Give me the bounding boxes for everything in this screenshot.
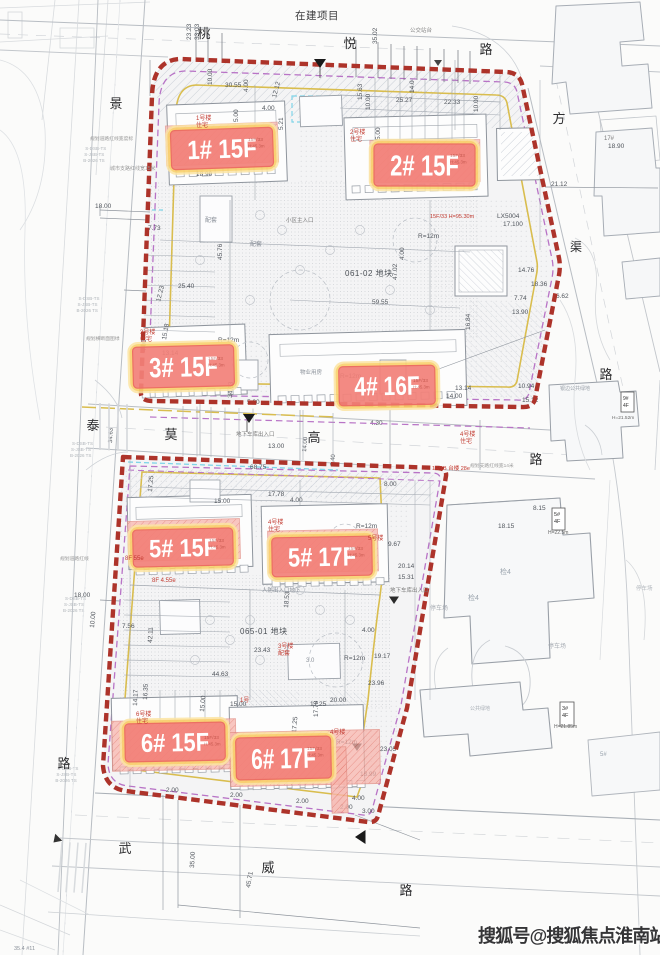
- svg-text:17#: 17#: [604, 136, 615, 142]
- svg-text:45.76: 45.76: [217, 243, 224, 260]
- svg-text:59.55: 59.55: [372, 299, 389, 306]
- svg-text:地下车库出入口: 地下车库出入口: [236, 430, 275, 438]
- svg-text:5.00: 5.00: [375, 127, 382, 140]
- svg-text:住宅: 住宅: [196, 121, 208, 129]
- svg-text:B-2026 TS: B-2026 TS: [83, 158, 104, 163]
- svg-text:3号楼: 3号楼: [278, 642, 293, 650]
- svg-text:8F 55e: 8F 55e: [125, 556, 144, 562]
- svg-text:4.00: 4.00: [262, 105, 275, 112]
- svg-text:13.90: 13.90: [512, 309, 529, 316]
- svg-text:2# 15F: 2# 15F: [390, 150, 459, 182]
- svg-text:景: 景: [109, 96, 122, 111]
- svg-text:15F/33: 15F/33: [209, 538, 224, 544]
- svg-text:在建项目: 在建项目: [295, 9, 339, 22]
- svg-text:18.90: 18.90: [608, 143, 625, 150]
- svg-text:5# 17F: 5# 17F: [288, 541, 357, 572]
- svg-text:23.05: 23.05: [380, 746, 397, 753]
- svg-text:悦: 悦: [343, 36, 356, 51]
- svg-text:规划支路红线宽14米: 规划支路红线宽14米: [470, 462, 514, 469]
- svg-text:30.55: 30.55: [225, 82, 242, 89]
- svg-text:17.100: 17.100: [503, 221, 523, 228]
- svg-text:1号: 1号: [240, 697, 249, 704]
- svg-text:8.15: 8.15: [533, 505, 546, 512]
- svg-text:3#: 3#: [562, 706, 569, 712]
- svg-text:路: 路: [57, 756, 70, 771]
- svg-text:4# 16F: 4# 16F: [354, 370, 420, 401]
- svg-text:23.43: 23.43: [254, 647, 271, 654]
- svg-text:17.78: 17.78: [268, 491, 285, 498]
- svg-text:42.11: 42.11: [147, 627, 155, 644]
- svg-text:规划横断面图绿: 规划横断面图绿: [86, 335, 120, 342]
- svg-text:15F/33: 15F/33: [248, 137, 263, 143]
- svg-text:25.27: 25.27: [396, 97, 413, 104]
- svg-text:17.25: 17.25: [291, 716, 299, 733]
- svg-text:7.73: 7.73: [148, 225, 161, 232]
- svg-text:泰: 泰: [86, 418, 99, 433]
- svg-text:1号楼: 1号楼: [196, 114, 211, 122]
- svg-text:4号楼: 4号楼: [268, 518, 283, 526]
- svg-text:9.67: 9.67: [388, 541, 401, 548]
- svg-text:停车场: 停车场: [548, 642, 566, 650]
- svg-text:城市支路红线宽15米: 城市支路红线宽15米: [110, 165, 156, 172]
- svg-text:检4: 检4: [468, 593, 479, 602]
- svg-text:H=21.85m: H=21.85m: [554, 724, 577, 730]
- svg-text:路: 路: [599, 367, 612, 382]
- svg-text:47.02: 47.02: [392, 263, 399, 280]
- svg-text:住宅: 住宅: [268, 525, 280, 533]
- svg-text:搜狐号@搜狐焦点淮南站: 搜狐号@搜狐焦点淮南站: [478, 925, 660, 946]
- svg-text:9#: 9#: [623, 396, 629, 402]
- svg-text:15F/33: 15F/33: [413, 378, 428, 384]
- svg-text:22.33: 22.33: [444, 99, 461, 106]
- svg-text:4号楼: 4号楼: [460, 430, 475, 438]
- svg-text:68.75: 68.75: [250, 464, 267, 471]
- svg-text:B-2026 TS: B-2026 TS: [63, 608, 84, 613]
- svg-text:R=12m: R=12m: [344, 655, 365, 662]
- svg-text:14.76: 14.76: [518, 267, 535, 274]
- svg-text:人防出入口地下: 人防出入口地下: [262, 586, 301, 594]
- svg-text:25.40: 25.40: [178, 283, 195, 290]
- svg-text:高: 高: [307, 430, 320, 445]
- svg-text:16.35: 16.35: [142, 683, 150, 700]
- svg-text:35.4 #11: 35.4 #11: [14, 946, 35, 952]
- svg-text:20.14: 20.14: [398, 563, 415, 570]
- svg-text:住宅: 住宅: [140, 335, 152, 343]
- svg-text:地下车库出入口: 地下车库出入口: [390, 586, 429, 594]
- svg-text:23.96: 23.96: [368, 680, 385, 687]
- svg-text:1# 15F: 1# 15F: [187, 133, 257, 165]
- svg-text:3.0: 3.0: [306, 658, 315, 664]
- svg-text:20.00: 20.00: [330, 697, 347, 704]
- svg-text:8F 4.55e: 8F 4.55e: [152, 578, 176, 584]
- svg-text:15F/33: 15F/33: [348, 546, 363, 552]
- svg-text:H:45.3m: H:45.3m: [450, 160, 467, 165]
- svg-text:S-JSB-TS: S-JSB-TS: [84, 152, 104, 157]
- svg-text:4号楼: 4号楼: [330, 728, 345, 736]
- svg-text:配套: 配套: [278, 649, 290, 657]
- svg-text:路: 路: [479, 42, 492, 57]
- svg-text:4.00: 4.00: [290, 497, 303, 504]
- svg-text:15F/33: 15F/33: [307, 746, 322, 752]
- svg-text:7.56: 7.56: [122, 623, 135, 630]
- svg-text:6# 15F: 6# 15F: [141, 729, 210, 758]
- svg-text:1F/1B 台楼 28e: 1F/1B 台楼 28e: [432, 464, 470, 472]
- svg-text:住宅: 住宅: [460, 437, 472, 445]
- svg-text:15.31: 15.31: [398, 574, 415, 581]
- svg-text:3号楼: 3号楼: [140, 328, 155, 336]
- svg-text:23.23: 23.23: [186, 23, 193, 40]
- svg-text:5.21: 5.21: [278, 117, 285, 130]
- svg-text:10.00: 10.00: [89, 611, 97, 628]
- svg-text:路: 路: [529, 452, 542, 467]
- svg-text:路: 路: [399, 883, 412, 898]
- svg-text:065-01 地块: 065-01 地块: [240, 626, 288, 636]
- svg-text:4F: 4F: [562, 713, 569, 719]
- svg-text:18.36: 18.36: [531, 281, 548, 288]
- svg-text:15.63: 15.63: [357, 83, 364, 100]
- svg-text:配套: 配套: [250, 240, 262, 248]
- svg-text:2.00: 2.00: [230, 792, 243, 799]
- svg-text:4.00: 4.00: [399, 247, 406, 260]
- svg-text:4.00: 4.00: [352, 795, 365, 802]
- svg-text:16.84: 16.84: [465, 313, 472, 330]
- svg-text:35.02: 35.02: [372, 27, 379, 44]
- svg-text:13.00: 13.00: [268, 443, 285, 450]
- svg-text:14.00: 14.00: [446, 393, 463, 400]
- svg-text:15F/33: 15F/33: [208, 356, 223, 362]
- svg-text:44.63: 44.63: [212, 671, 229, 678]
- svg-text:2.00: 2.00: [166, 787, 179, 794]
- svg-text:配套: 配套: [205, 216, 217, 224]
- svg-text:4.00: 4.00: [362, 627, 375, 634]
- svg-text:H:45.3m: H:45.3m: [348, 553, 365, 558]
- svg-text:13.14: 13.14: [455, 385, 472, 392]
- svg-text:4F: 4F: [554, 519, 561, 525]
- svg-text:R=12m: R=12m: [418, 233, 439, 240]
- svg-text:S-DSB-TS: S-DSB-TS: [85, 146, 106, 151]
- svg-text:银边公共绿地: 银边公共绿地: [560, 385, 590, 392]
- svg-text:LX5004: LX5004: [497, 213, 520, 220]
- svg-text:10.94: 10.94: [518, 383, 535, 390]
- svg-text:15.00: 15.00: [199, 695, 207, 712]
- svg-text:17.25: 17.25: [147, 475, 155, 492]
- svg-text:5# 15F: 5# 15F: [149, 534, 218, 564]
- svg-text:物业用房: 物业用房: [300, 368, 323, 376]
- svg-text:H:45.3m: H:45.3m: [208, 363, 225, 368]
- svg-text:莫: 莫: [164, 427, 177, 442]
- svg-text:武: 武: [118, 841, 131, 856]
- svg-text:B-2026 TS: B-2026 TS: [77, 308, 98, 313]
- svg-text:10.00: 10.00: [365, 93, 372, 110]
- svg-text:住宅: 住宅: [136, 717, 148, 725]
- svg-text:18.00: 18.00: [95, 203, 112, 210]
- svg-text:渠: 渠: [570, 240, 582, 254]
- svg-text:6号楼: 6号楼: [136, 710, 151, 718]
- svg-text:H:45.3m: H:45.3m: [248, 144, 265, 149]
- svg-text:方: 方: [552, 111, 565, 126]
- svg-text:2号楼: 2号楼: [350, 128, 365, 136]
- svg-text:8.00: 8.00: [384, 481, 397, 488]
- svg-text:7.74: 7.74: [514, 295, 527, 302]
- svg-text:15F/33: 15F/33: [450, 153, 465, 159]
- svg-text:停车场: 停车场: [430, 604, 448, 612]
- svg-text:10.00: 10.00: [473, 95, 480, 112]
- svg-text:14.17: 14.17: [132, 689, 140, 706]
- svg-text:5#: 5#: [554, 512, 561, 518]
- svg-text:5号楼: 5号楼: [368, 534, 383, 542]
- svg-text:4.00: 4.00: [243, 79, 250, 92]
- svg-text:H:45.3m: H:45.3m: [209, 545, 226, 550]
- svg-text:S-JSB-TS: S-JSB-TS: [64, 602, 84, 607]
- svg-text:18.15: 18.15: [498, 523, 515, 530]
- svg-text:公共绿地: 公共绿地: [470, 705, 490, 712]
- svg-text:S-DSB-TS: S-DSB-TS: [79, 296, 100, 301]
- svg-text:5#: 5#: [600, 752, 607, 758]
- svg-text:B-2026 TS: B-2026 TS: [70, 453, 91, 458]
- svg-text:2.00: 2.00: [296, 798, 309, 805]
- svg-text:H:45.3m: H:45.3m: [204, 742, 221, 747]
- svg-text:规划道路红线: 规划道路红线: [60, 555, 89, 562]
- svg-text:4F: 4F: [623, 403, 629, 409]
- svg-text:桃: 桃: [197, 26, 210, 41]
- svg-text:19.17: 19.17: [374, 653, 391, 660]
- svg-text:17.78: 17.78: [313, 700, 320, 717]
- svg-text:14.0: 14.0: [409, 80, 416, 93]
- svg-text:15F/33 H=95.30m: 15F/33 H=95.30m: [430, 214, 475, 220]
- svg-text:住宅: 住宅: [350, 135, 362, 143]
- svg-text:061-02 地块: 061-02 地块: [345, 268, 393, 278]
- svg-text:规划道路红线宽度标: 规划道路红线宽度标: [90, 135, 133, 142]
- svg-text:S-JSB-TS: S-JSB-TS: [78, 302, 98, 307]
- svg-text:6.62: 6.62: [556, 293, 569, 300]
- svg-text:H:45.3m: H:45.3m: [413, 385, 430, 390]
- svg-text:35.00: 35.00: [189, 851, 197, 868]
- svg-text:H=22.5m: H=22.5m: [548, 530, 568, 536]
- svg-text:H:45.3m: H:45.3m: [307, 753, 324, 758]
- svg-text:10.00: 10.00: [207, 68, 214, 85]
- svg-text:S-DSB-TS: S-DSB-TS: [72, 441, 93, 446]
- svg-text:3.00: 3.00: [362, 808, 375, 815]
- svg-text:威: 威: [261, 860, 274, 875]
- svg-text:18.00: 18.00: [74, 592, 91, 599]
- svg-text:5.00: 5.00: [233, 109, 240, 122]
- svg-text:公交站台: 公交站台: [410, 26, 433, 34]
- svg-text:15F/33: 15F/33: [204, 735, 219, 741]
- svg-text:H=21.52m: H=21.52m: [612, 415, 634, 421]
- svg-text:小区主入口: 小区主入口: [286, 216, 314, 224]
- svg-text:停车场: 停车场: [636, 584, 653, 592]
- svg-text:检4: 检4: [500, 567, 511, 576]
